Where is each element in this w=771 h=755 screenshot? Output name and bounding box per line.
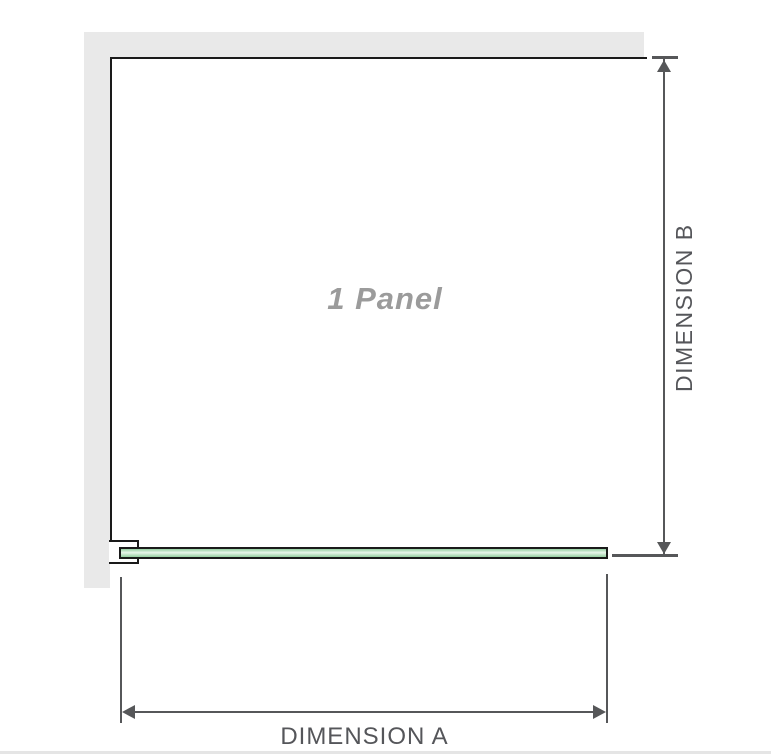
wall-top-strip: [84, 32, 644, 58]
dimension-b-line: [663, 59, 665, 555]
dimension-a-right-extension-line: [606, 574, 608, 723]
panel-top-edge: [110, 57, 647, 59]
dimension-a-line: [131, 711, 597, 713]
dimension-a-label: DIMENSION A: [121, 724, 608, 750]
bottom-divider: [0, 751, 771, 754]
arrow-down-icon: [657, 542, 671, 554]
arrow-up-icon: [657, 60, 671, 72]
arrow-left-icon: [122, 705, 135, 719]
panel-dimension-diagram: 1 Panel DIMENSION B DIMENSION A: [0, 0, 771, 755]
dimension-b-top-cap: [652, 56, 678, 59]
dimension-a-left-extension-line: [120, 577, 122, 723]
wall-left-strip: [84, 32, 110, 588]
panel-count-label: 1 Panel: [110, 282, 660, 315]
dimension-b-bottom-cap: [612, 554, 678, 557]
arrow-right-icon: [593, 705, 606, 719]
dimension-b-label: DIMENSION B: [672, 232, 697, 392]
glass-panel-bar: [119, 547, 608, 559]
